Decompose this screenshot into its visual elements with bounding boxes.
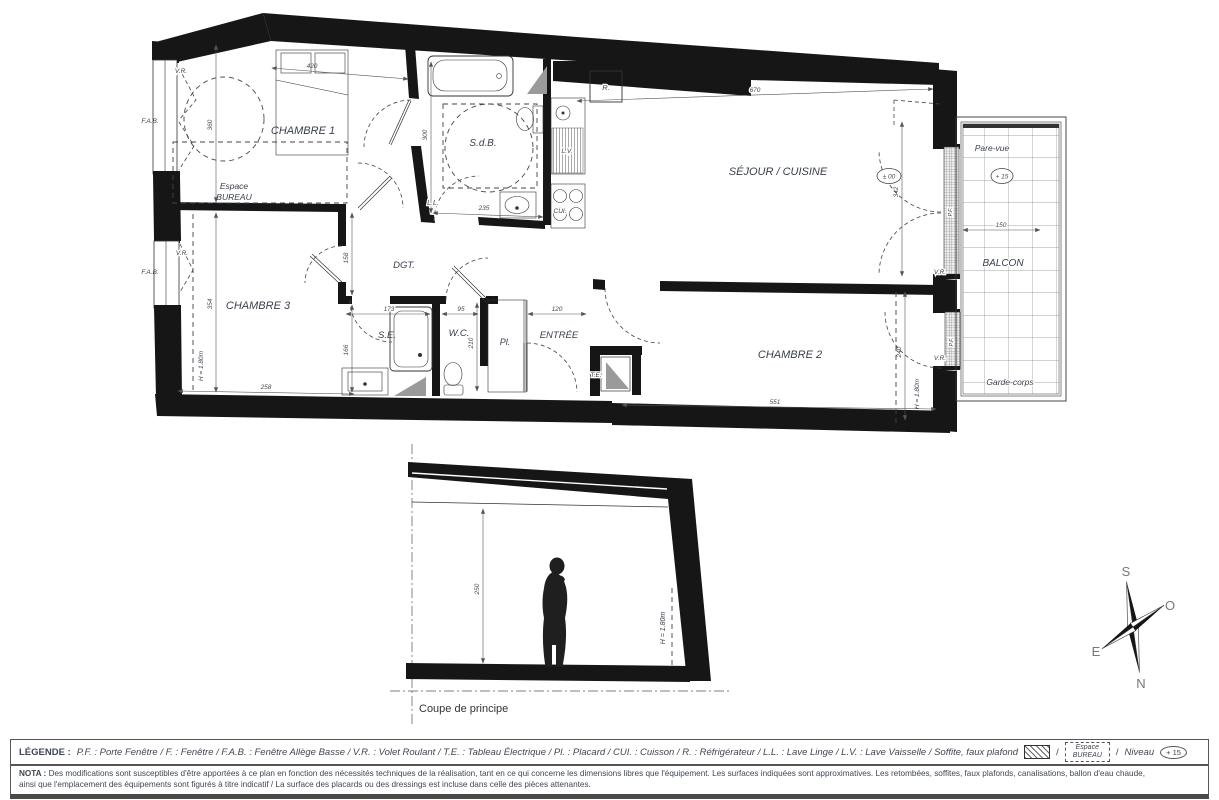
soffite-wedge-se bbox=[394, 377, 426, 396]
toilet-wc bbox=[444, 363, 463, 396]
room-label-wc: W.C. bbox=[449, 328, 470, 339]
legend-title: LÉGENDE : bbox=[19, 747, 71, 758]
h180-label-section: H = 1.80m bbox=[660, 612, 667, 645]
niveau-value-balcon: + 15 bbox=[996, 174, 1009, 181]
room-label-dgt: DGT. bbox=[393, 260, 415, 271]
bathtub bbox=[428, 56, 513, 96]
pf-label-2: P.F. bbox=[949, 338, 955, 347]
dim-173: 173 bbox=[384, 306, 395, 313]
person-silhouette bbox=[543, 558, 568, 668]
compass-rose: S O E N bbox=[1092, 564, 1175, 691]
fridge-label: R. bbox=[602, 83, 610, 92]
espace-bureau-line2: BUREAU bbox=[216, 192, 252, 202]
vr-label-2: V.R. bbox=[176, 250, 188, 257]
balcony: Pare-vue + 15 150 BALCON Garde-corps bbox=[956, 117, 1066, 401]
compass-east: E bbox=[1092, 644, 1101, 659]
dim-551: 551 bbox=[770, 399, 781, 406]
compass-north: N bbox=[1136, 676, 1145, 691]
room-label-te: T.E. bbox=[590, 372, 602, 379]
fixtures bbox=[276, 50, 622, 396]
room-label-chambre2: CHAMBRE 2 bbox=[758, 349, 822, 361]
dim-158: 158 bbox=[343, 252, 350, 263]
espace-bureau-swatch-line2: BUREAU bbox=[1073, 752, 1102, 760]
low-ceiling-zone-chambre1 bbox=[184, 77, 264, 161]
dim-300: 300 bbox=[422, 129, 429, 140]
legend-abbreviations: P.F. : Porte Fenêtre / F. : Fenêtre / F.… bbox=[77, 747, 1018, 758]
soffite-hatch-swatch bbox=[1024, 745, 1050, 759]
toilet-sdb bbox=[517, 106, 544, 133]
lave-linge-label: L.L. bbox=[427, 200, 439, 207]
dim-210: 210 bbox=[468, 337, 475, 349]
h180-label-chambre3: H = 1.80m bbox=[198, 350, 205, 381]
room-label-sdb: S.d.B. bbox=[469, 138, 496, 149]
legend-niveau-label: Niveau bbox=[1125, 747, 1155, 758]
compass-south: S bbox=[1122, 564, 1131, 579]
pare-vue-screen bbox=[963, 124, 1059, 128]
legend-separator-2: / bbox=[1116, 747, 1119, 758]
dim-240: 240 bbox=[896, 346, 903, 358]
legend-niveau-badge: + 15 bbox=[1160, 746, 1187, 759]
vr-label-4: V.R. bbox=[934, 355, 946, 362]
niveau-value-sejour: ± 00 bbox=[883, 174, 896, 181]
dim-120: 120 bbox=[552, 306, 563, 313]
nota-text-2: ainsi que l'emplacement des équipements … bbox=[19, 780, 591, 789]
fab-label-2: F.A.B. bbox=[141, 269, 158, 276]
dim-150: 150 bbox=[996, 222, 1007, 229]
washbasin-se bbox=[342, 368, 388, 395]
floor-plan-canvas: Pare-vue + 15 150 BALCON Garde-corps bbox=[0, 0, 1219, 735]
doors bbox=[179, 68, 941, 392]
floor-plan-sheet: Pare-vue + 15 150 BALCON Garde-corps bbox=[0, 0, 1219, 800]
shower bbox=[390, 307, 432, 371]
dim-258: 258 bbox=[260, 384, 272, 391]
cuisson-label: CUI. bbox=[554, 208, 567, 215]
room-label-chambre1: CHAMBRE 1 bbox=[271, 125, 335, 137]
nota-line-1: NOTA : Des modifications sont susceptibl… bbox=[19, 768, 1200, 779]
room-labels: CHAMBRE 1 CHAMBRE 3 CHAMBRE 2 SÉJOUR / C… bbox=[216, 125, 828, 379]
exterior-walls bbox=[152, 13, 960, 433]
vr-label-3: V.R. bbox=[934, 269, 946, 276]
dimensions: 670 420 360 354 158 166 300 235 173 95 2… bbox=[178, 45, 936, 420]
dim-670: 670 bbox=[750, 87, 761, 94]
fab-label-1: F.A.B. bbox=[141, 118, 158, 125]
espace-bureau-swatch: Espace BUREAU bbox=[1065, 742, 1110, 762]
espace-bureau-line1: Espace bbox=[220, 181, 249, 191]
nota-bar: NOTA : Des modifications sont susceptibl… bbox=[10, 765, 1209, 799]
sink-sdb bbox=[500, 192, 536, 218]
room-label-placard: Pl. bbox=[500, 337, 511, 347]
dim-342: 342 bbox=[893, 186, 900, 197]
dim-354: 354 bbox=[207, 298, 214, 309]
room-label-entree: ENTRÉE bbox=[540, 330, 579, 341]
espace-bureau-zone bbox=[173, 142, 347, 203]
interior-walls bbox=[168, 45, 939, 396]
compass-west: O bbox=[1165, 598, 1175, 613]
dim-235: 235 bbox=[478, 205, 490, 212]
room-label-se: S.E. bbox=[378, 330, 396, 341]
pare-vue-label: Pare-vue bbox=[975, 143, 1010, 153]
lave-vaisselle-label: L.V. bbox=[561, 148, 572, 155]
dim-360: 360 bbox=[207, 119, 214, 130]
dim-95: 95 bbox=[457, 306, 465, 313]
h180-label-chambre2: H = 1.80m bbox=[914, 378, 921, 409]
legend-separator-1: / bbox=[1056, 747, 1059, 758]
espace-bureau-swatch-line1: Espace bbox=[1076, 744, 1099, 752]
dim-250: 250 bbox=[474, 583, 481, 595]
dim-420: 420 bbox=[307, 63, 318, 70]
section-title: Coupe de principe bbox=[419, 703, 508, 715]
room-label-sejour: SÉJOUR / CUISINE bbox=[729, 165, 828, 178]
nota-line-2: ainsi que l'emplacement des équipements … bbox=[19, 779, 1200, 790]
vr-label-1: V.R. bbox=[175, 68, 187, 75]
room-label-chambre3: CHAMBRE 3 bbox=[226, 300, 291, 312]
nota-text-1: Des modifications sont susceptibles d'êt… bbox=[49, 769, 1145, 778]
legend-bar: LÉGENDE : P.F. : Porte Fenêtre / F. : Fe… bbox=[10, 739, 1209, 765]
section-view: 250 H = 1.80m Coupe de principe bbox=[390, 444, 732, 724]
dim-166: 166 bbox=[343, 344, 350, 355]
balcon-label: BALCON bbox=[982, 258, 1024, 269]
garde-corps-label: Garde-corps bbox=[986, 377, 1034, 387]
nota-title: NOTA : bbox=[19, 769, 46, 778]
pf-label-1: P.F. bbox=[948, 208, 954, 217]
